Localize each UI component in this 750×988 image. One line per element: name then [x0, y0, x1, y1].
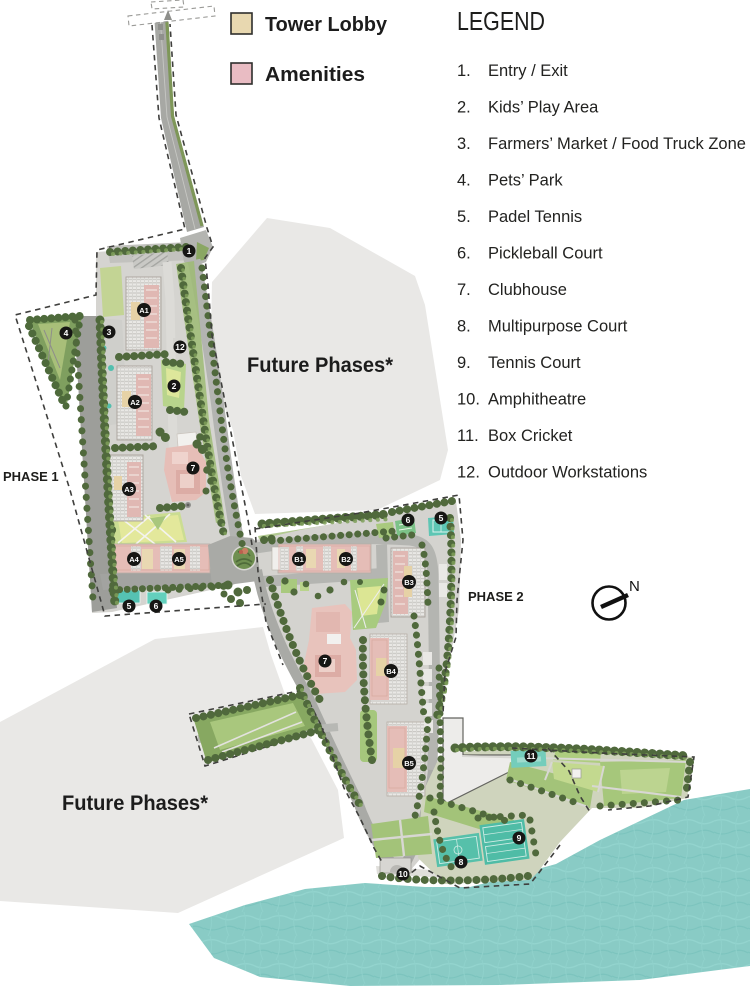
- svg-text:Clubhouse: Clubhouse: [488, 281, 567, 299]
- svg-text:7.: 7.: [457, 281, 471, 299]
- svg-text:Future Phases*: Future Phases*: [247, 354, 394, 377]
- svg-text:3: 3: [107, 327, 112, 337]
- svg-text:A3: A3: [124, 485, 134, 494]
- svg-text:B5: B5: [404, 759, 414, 768]
- svg-text:B3: B3: [404, 578, 414, 587]
- svg-text:Amphitheatre: Amphitheatre: [488, 391, 586, 409]
- svg-text:B1: B1: [294, 555, 304, 564]
- svg-text:8: 8: [459, 857, 464, 867]
- svg-text:B2: B2: [341, 555, 351, 564]
- svg-text:Padel Tennis: Padel Tennis: [488, 208, 582, 226]
- svg-text:10.: 10.: [457, 391, 480, 409]
- svg-text:N: N: [629, 578, 640, 595]
- svg-text:B4: B4: [386, 667, 396, 676]
- svg-text:Multipurpose Court: Multipurpose Court: [488, 318, 628, 336]
- svg-text:2.: 2.: [457, 99, 471, 117]
- svg-text:Pickleball Court: Pickleball Court: [488, 245, 603, 263]
- svg-text:LEGEND: LEGEND: [457, 6, 545, 36]
- svg-text:Future Phases*: Future Phases*: [62, 792, 209, 815]
- svg-text:6: 6: [154, 601, 159, 611]
- svg-text:Tennis Court: Tennis Court: [488, 354, 581, 372]
- svg-text:6.: 6.: [457, 245, 471, 263]
- svg-text:Entry / Exit: Entry / Exit: [488, 62, 568, 80]
- svg-text:12: 12: [175, 342, 185, 352]
- svg-text:1.: 1.: [457, 62, 471, 80]
- svg-text:1: 1: [187, 246, 192, 256]
- svg-text:Box Cricket: Box Cricket: [488, 427, 573, 445]
- svg-text:Amenities: Amenities: [265, 64, 365, 86]
- svg-text:A1: A1: [139, 306, 149, 315]
- svg-text:8.: 8.: [457, 318, 471, 336]
- svg-text:Pets’ Park: Pets’ Park: [488, 172, 563, 190]
- svg-text:Outdoor Workstations: Outdoor Workstations: [488, 464, 647, 482]
- svg-text:Farmers’ Market / Food Truck Z: Farmers’ Market / Food Truck Zone: [488, 135, 746, 153]
- svg-text:7: 7: [191, 463, 196, 473]
- svg-text:4: 4: [64, 328, 69, 338]
- svg-text:10: 10: [398, 869, 408, 879]
- svg-text:Kids’ Play Area: Kids’ Play Area: [488, 99, 599, 117]
- svg-text:Tower Lobby: Tower Lobby: [265, 14, 388, 36]
- svg-text:5.: 5.: [457, 208, 471, 226]
- svg-text:3.: 3.: [457, 135, 471, 153]
- svg-text:4.: 4.: [457, 172, 471, 190]
- svg-text:5: 5: [127, 601, 132, 611]
- svg-text:PHASE 2: PHASE 2: [468, 589, 524, 604]
- svg-text:11.: 11.: [457, 427, 479, 445]
- svg-text:PHASE 1: PHASE 1: [3, 469, 59, 484]
- svg-text:A2: A2: [130, 398, 140, 407]
- svg-text:2: 2: [172, 381, 177, 391]
- svg-text:9.: 9.: [457, 354, 471, 372]
- svg-text:9: 9: [517, 833, 522, 843]
- svg-text:A4: A4: [129, 555, 139, 564]
- svg-text:12.: 12.: [457, 464, 480, 482]
- svg-text:11: 11: [527, 751, 536, 761]
- svg-text:A5: A5: [174, 555, 184, 564]
- svg-text:7: 7: [323, 656, 328, 666]
- svg-text:5: 5: [439, 513, 444, 523]
- svg-text:6: 6: [406, 515, 411, 525]
